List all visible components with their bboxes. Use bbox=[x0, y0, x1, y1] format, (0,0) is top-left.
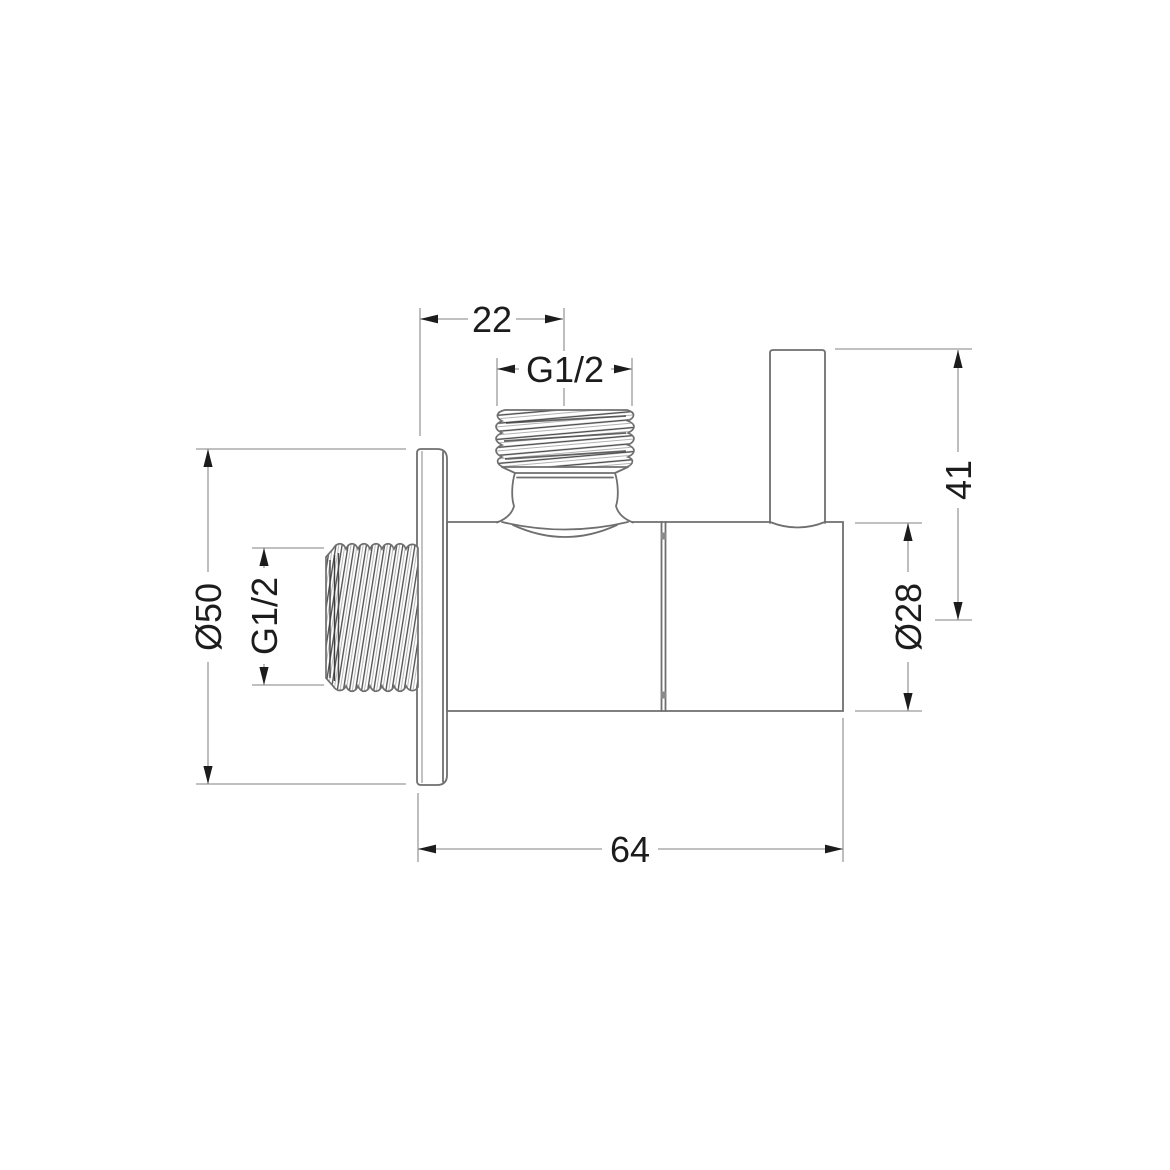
dim-label-top-thread: G1/2 bbox=[526, 349, 604, 390]
handle-stem bbox=[770, 350, 825, 528]
dim-label-top-offset: 22 bbox=[472, 299, 512, 340]
arrow-top bbox=[203, 449, 212, 467]
arrow-top bbox=[259, 548, 268, 566]
arrow-right bbox=[825, 845, 843, 854]
arrow-right bbox=[545, 315, 563, 324]
joint-notch-top bbox=[661, 533, 667, 540]
technical-drawing: 22 G1/2 Ø50 G1/2 bbox=[0, 0, 1170, 1170]
arrow-right bbox=[614, 365, 632, 374]
dim-length: 64 bbox=[418, 718, 843, 870]
arrow-bottom bbox=[953, 602, 962, 620]
arrow-bottom bbox=[259, 667, 268, 685]
arrow-left bbox=[420, 315, 438, 324]
arrow-top bbox=[953, 350, 962, 368]
joint-notch-bottom bbox=[661, 692, 667, 699]
dim-body-diameter: Ø28 bbox=[855, 523, 929, 711]
arrow-bottom bbox=[203, 766, 212, 784]
wall-flange bbox=[417, 449, 447, 785]
dim-label-body-diameter: Ø28 bbox=[888, 583, 929, 651]
dim-label-left-thread: G1/2 bbox=[244, 577, 285, 655]
arrow-left bbox=[418, 845, 436, 854]
outlet-thread bbox=[496, 410, 634, 467]
arrow-bottom bbox=[903, 693, 912, 711]
dim-label-height: 41 bbox=[938, 460, 979, 500]
dim-label-flange-diameter: Ø50 bbox=[188, 583, 229, 651]
dim-label-length: 64 bbox=[610, 829, 650, 870]
drawing-canvas: 22 G1/2 Ø50 G1/2 bbox=[0, 0, 1170, 1170]
inlet-thread bbox=[326, 544, 418, 692]
dim-left-thread: G1/2 bbox=[244, 548, 324, 685]
arrow-left bbox=[497, 365, 515, 374]
arrow-top bbox=[903, 523, 912, 541]
valve-body bbox=[447, 522, 843, 711]
